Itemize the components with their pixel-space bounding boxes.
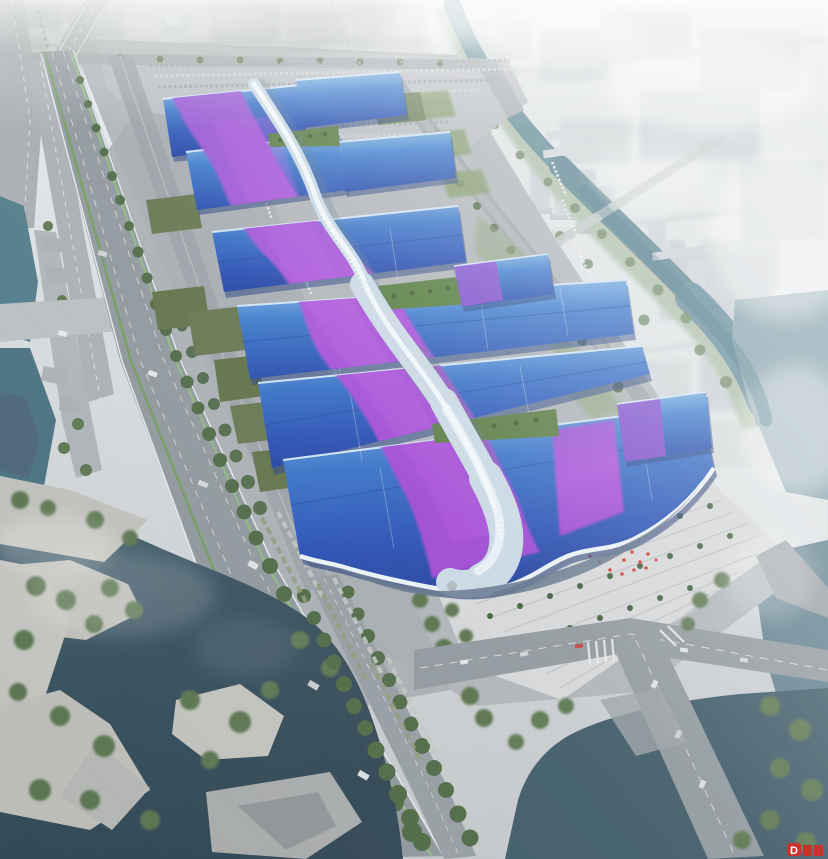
svg-text:D: D — [790, 845, 798, 857]
